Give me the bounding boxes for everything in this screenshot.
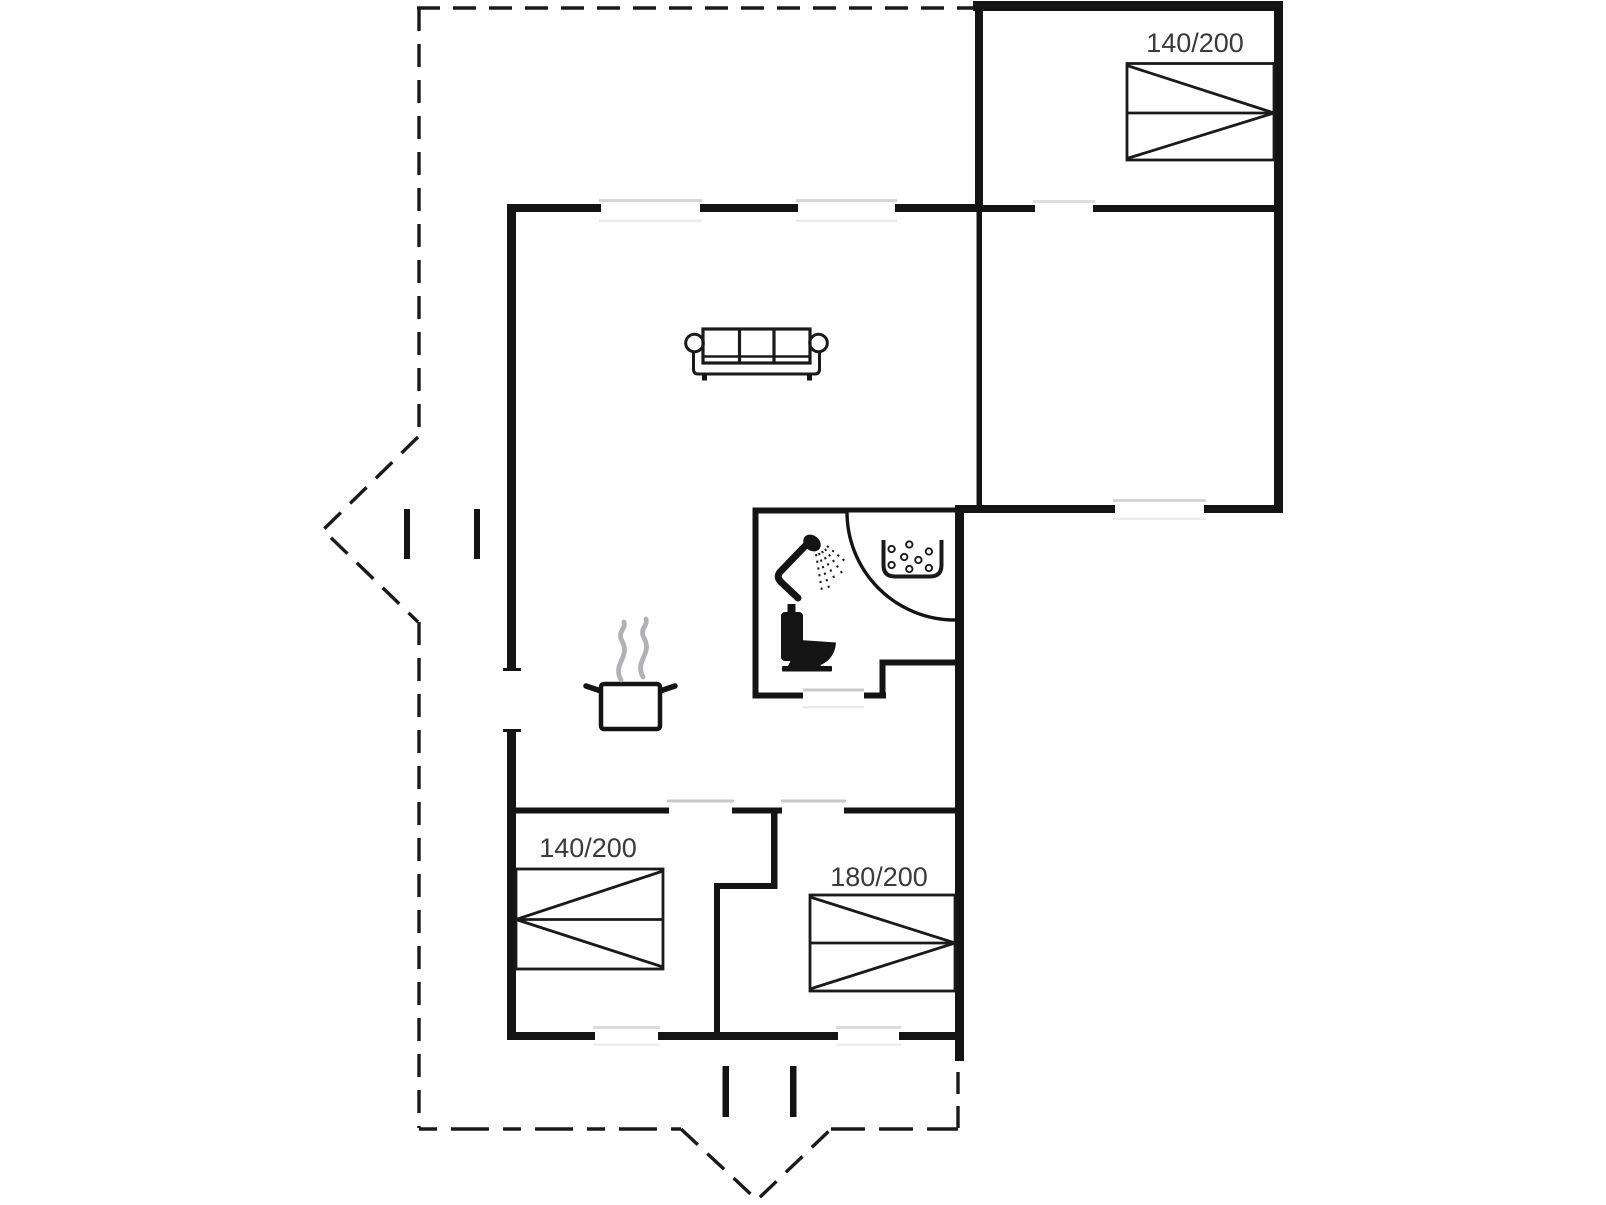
svg-text:140/200: 140/200 [539, 833, 637, 863]
svg-text:140/200: 140/200 [1146, 28, 1244, 58]
svg-text:180/200: 180/200 [830, 862, 928, 892]
